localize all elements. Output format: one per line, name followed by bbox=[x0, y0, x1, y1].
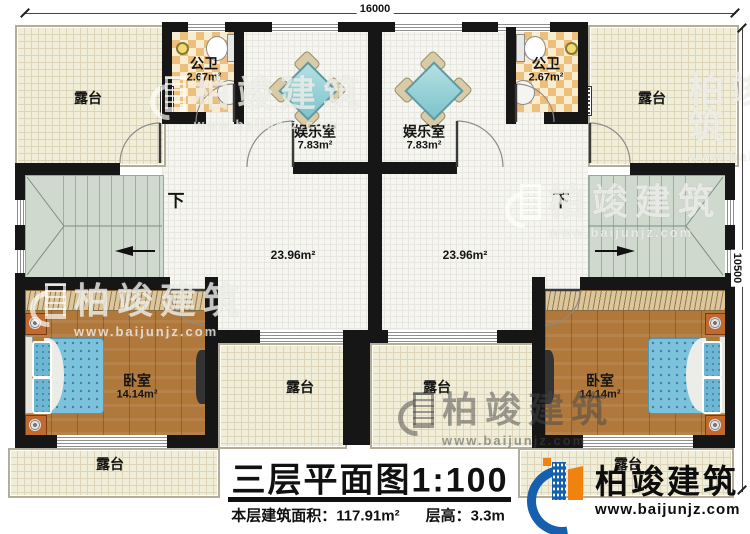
lamp-icon bbox=[709, 317, 721, 329]
wall bbox=[630, 163, 735, 175]
lamp-icon bbox=[709, 419, 721, 431]
wall bbox=[497, 330, 545, 343]
window bbox=[395, 22, 462, 32]
label-terrace-mid-left: 露台 bbox=[286, 379, 314, 395]
wall bbox=[15, 273, 25, 448]
wall bbox=[225, 22, 272, 32]
plan-title-text: 三层平面图 bbox=[232, 462, 412, 500]
label-terrace-mid-right: 露台 bbox=[423, 379, 451, 395]
label-hall-area-right: 23.96m² bbox=[443, 248, 488, 262]
wall bbox=[162, 22, 172, 124]
stairs-left bbox=[25, 175, 164, 279]
wall-central bbox=[368, 22, 382, 343]
wall bbox=[205, 277, 218, 448]
wall bbox=[15, 277, 170, 290]
wall bbox=[580, 277, 735, 290]
floor-height-label: 层高： bbox=[426, 508, 471, 525]
shower-icon bbox=[565, 42, 578, 55]
nightstand bbox=[25, 415, 47, 437]
terrace-mid-right bbox=[370, 343, 536, 449]
wall bbox=[506, 27, 516, 124]
wall bbox=[532, 435, 583, 448]
terrace-mid-left bbox=[218, 343, 347, 449]
lamp-icon bbox=[29, 317, 41, 329]
label-terrace-bottom-left: 露台 bbox=[96, 456, 124, 472]
wall bbox=[162, 112, 206, 124]
brand-block: 柏竣建筑 www.baijunjz.com bbox=[527, 458, 740, 524]
wall bbox=[15, 163, 120, 175]
label-entertainment-right: 娱乐室 7.83m² bbox=[403, 124, 445, 153]
pillow bbox=[702, 377, 722, 414]
wall bbox=[578, 22, 588, 124]
window bbox=[15, 200, 25, 225]
brand-website: www.baijunjz.com bbox=[595, 501, 740, 518]
window bbox=[725, 200, 735, 225]
area-value: 117.91m² bbox=[336, 508, 399, 525]
wall bbox=[382, 162, 457, 174]
nightstand bbox=[705, 313, 727, 335]
label-stairs-down-right: 下 bbox=[553, 187, 570, 212]
nightstand bbox=[705, 415, 727, 437]
pillow bbox=[32, 341, 52, 378]
window bbox=[583, 435, 693, 448]
nightstand bbox=[25, 313, 47, 335]
wall bbox=[532, 277, 545, 448]
wall bbox=[15, 435, 57, 448]
wall bbox=[725, 273, 735, 448]
label-terrace-top-right: 露台 bbox=[638, 90, 666, 106]
wall bbox=[167, 435, 218, 448]
wall-terrace-divider bbox=[343, 330, 370, 445]
wall bbox=[370, 330, 388, 343]
dimension-top-value: 16000 bbox=[357, 3, 394, 15]
label-terrace-top-left: 露台 bbox=[74, 90, 102, 106]
dimension-right-value: 10500 bbox=[731, 250, 743, 287]
wall bbox=[15, 225, 25, 250]
pillow bbox=[32, 377, 52, 414]
label-bathroom-right: 公卫 2.67m² bbox=[529, 56, 564, 85]
plan-subtitle: 本层建筑面积：117.91m²层高：3.3m bbox=[231, 505, 505, 526]
lamp-icon bbox=[29, 419, 41, 431]
plan-title: 三层平面图1:100 bbox=[232, 453, 509, 502]
wall bbox=[544, 112, 588, 124]
wall bbox=[725, 225, 735, 250]
window bbox=[272, 22, 338, 32]
label-bathroom-left: 公卫 2.67m² bbox=[187, 56, 222, 85]
plan-scale: 1:100 bbox=[412, 462, 509, 500]
tv-icon bbox=[545, 350, 554, 404]
brand-logo-icon bbox=[527, 458, 587, 524]
window bbox=[260, 330, 343, 343]
brand-name: 柏竣建筑 bbox=[595, 465, 740, 498]
title-underline bbox=[228, 497, 511, 502]
wall bbox=[293, 162, 368, 174]
window bbox=[188, 22, 225, 32]
brand-text: 柏竣建筑 www.baijunjz.com bbox=[595, 465, 740, 518]
floor-plan: 露台 露台 公卫 2.67m² 公卫 2.67m² 娱乐室 7.83m² 娱乐室… bbox=[0, 0, 750, 534]
closet-left bbox=[25, 290, 207, 311]
stairs-right bbox=[588, 175, 727, 279]
wall bbox=[338, 22, 395, 32]
label-entertainment-left: 娱乐室 7.83m² bbox=[294, 124, 336, 153]
wall bbox=[15, 163, 25, 200]
pillow bbox=[702, 341, 722, 378]
closet-right bbox=[545, 290, 727, 311]
window bbox=[57, 435, 167, 448]
label-hall-area-left: 23.96m² bbox=[271, 248, 316, 262]
label-stairs-down-left: 下 bbox=[168, 187, 185, 212]
label-bedroom-left: 卧室 14.14m² bbox=[117, 373, 158, 402]
wall bbox=[234, 27, 244, 124]
stairs-left-treads bbox=[63, 176, 163, 278]
tv-icon bbox=[196, 350, 205, 404]
wall bbox=[725, 163, 735, 200]
wall bbox=[693, 435, 735, 448]
stairs-right-treads bbox=[589, 176, 689, 278]
area-label: 本层建筑面积： bbox=[231, 508, 336, 525]
label-bedroom-right: 卧室 14.14m² bbox=[580, 373, 621, 402]
wall bbox=[462, 22, 498, 32]
floor-height-value: 3.3m bbox=[471, 508, 505, 525]
window bbox=[388, 330, 497, 343]
shower-icon bbox=[176, 42, 189, 55]
window bbox=[15, 250, 25, 273]
wall bbox=[205, 330, 260, 343]
